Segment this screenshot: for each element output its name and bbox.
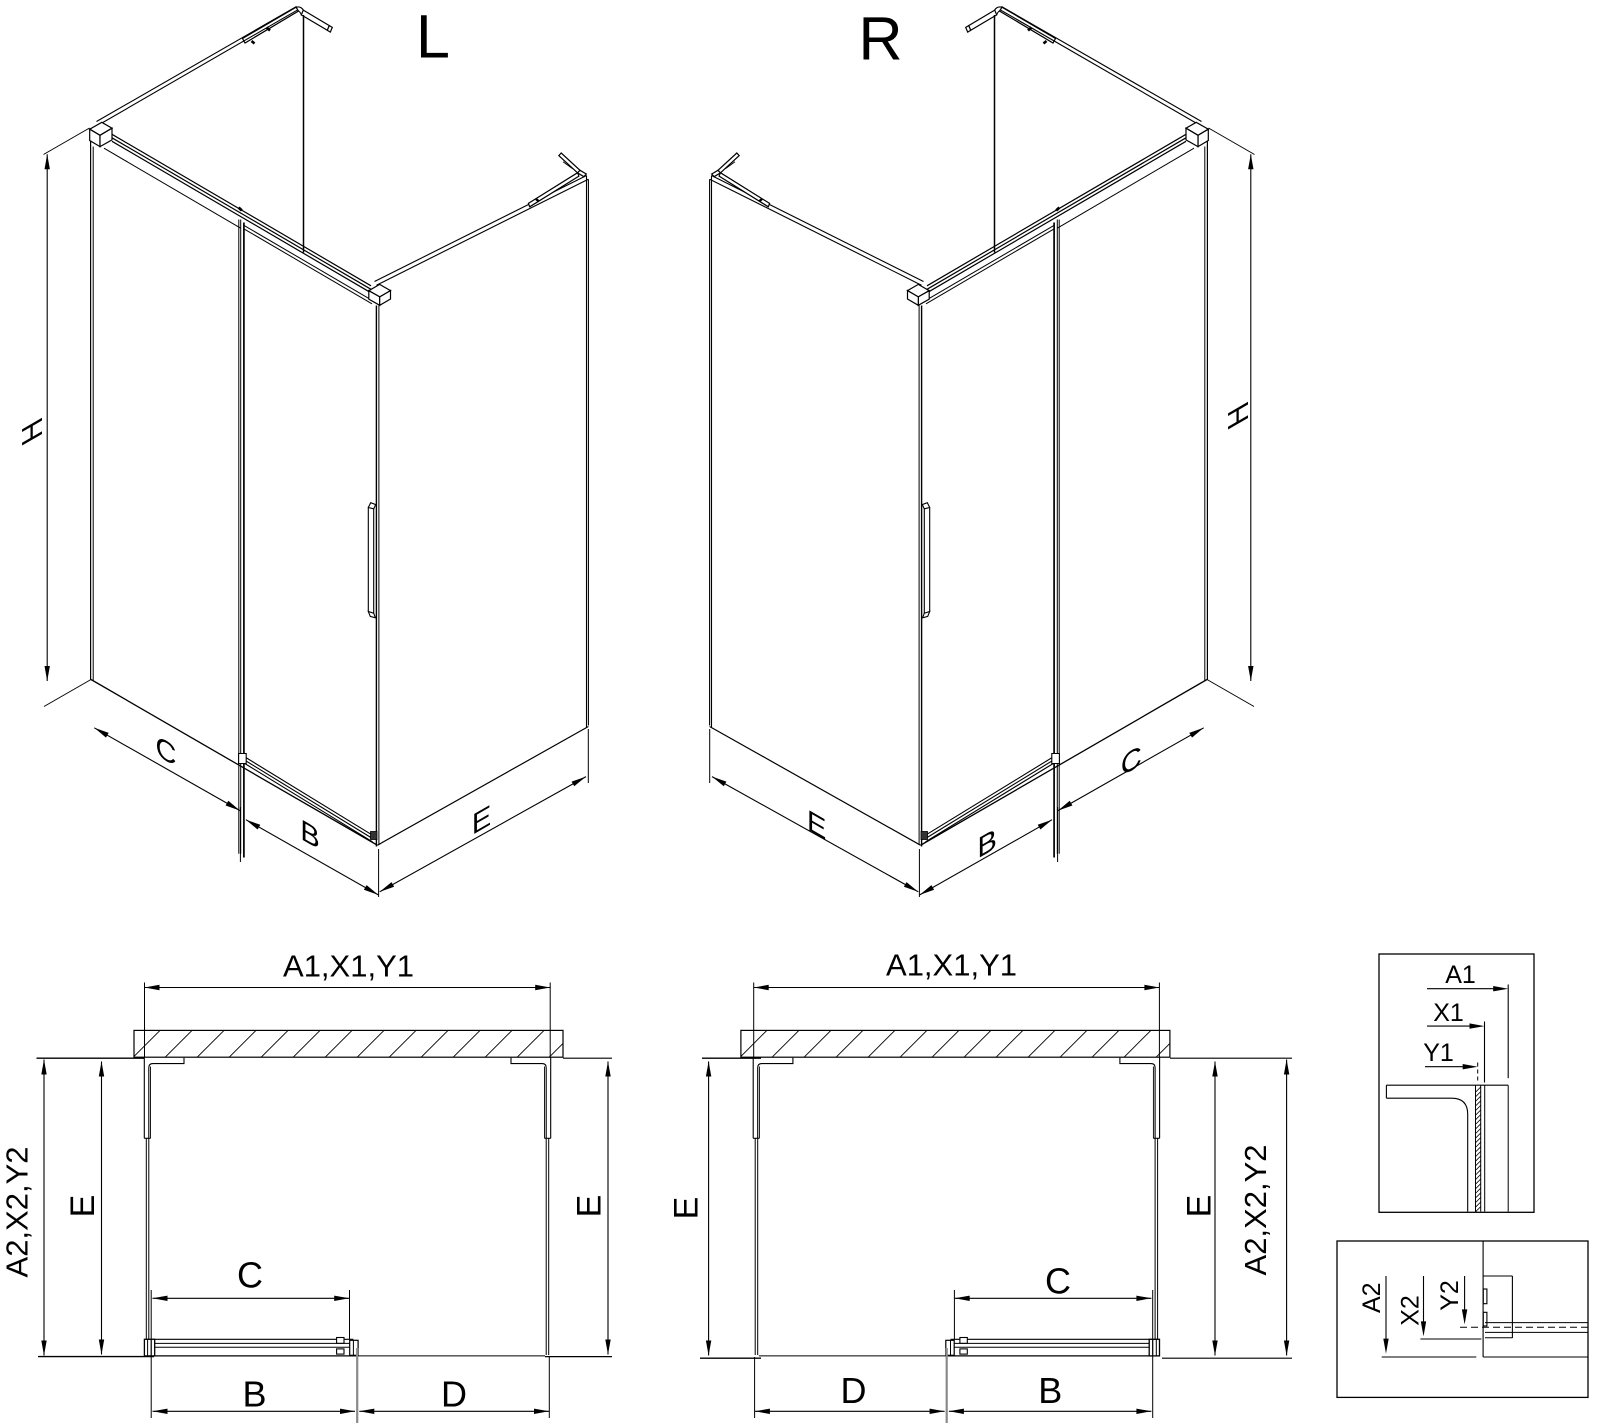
svg-text:A1: A1 [1445,961,1476,989]
svg-text:Y1: Y1 [1423,1039,1454,1067]
svg-text:A1,X1,Y1: A1,X1,Y1 [886,948,1017,983]
svg-text:C: C [237,1255,263,1296]
svg-text:B: B [1038,1370,1062,1411]
svg-text:E: E [668,1197,706,1220]
svg-text:D: D [441,1374,467,1415]
svg-text:A1,X1,Y1: A1,X1,Y1 [283,949,414,984]
svg-text:A2: A2 [1358,1282,1386,1313]
svg-text:Y2: Y2 [1436,1280,1464,1311]
svg-text:E: E [1181,1195,1219,1218]
svg-text:X2: X2 [1396,1295,1424,1326]
svg-text:R: R [858,5,902,73]
svg-text:E: E [64,1195,102,1218]
svg-text:X1: X1 [1433,999,1464,1027]
svg-text:C: C [1045,1261,1071,1302]
svg-text:A2,X2,Y2: A2,X2,Y2 [0,1147,35,1278]
svg-text:E: E [571,1195,609,1218]
svg-text:B: B [242,1374,266,1415]
svg-text:L: L [416,3,450,71]
svg-text:D: D [841,1370,867,1411]
svg-text:A2,X2,Y2: A2,X2,Y2 [1238,1145,1273,1276]
